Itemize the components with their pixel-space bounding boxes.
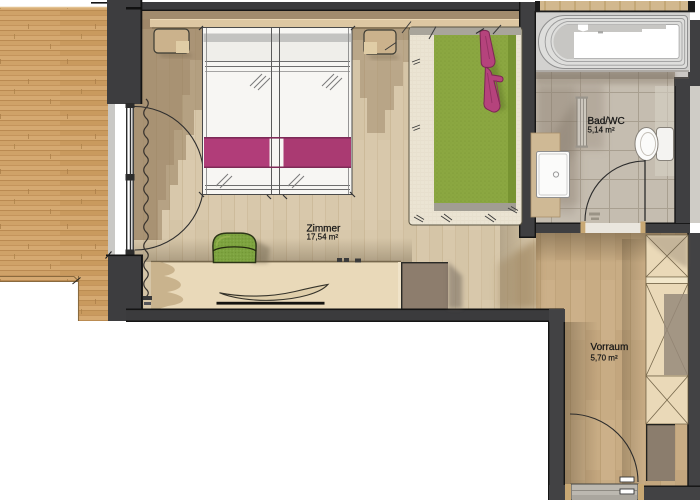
svg-text:17,54 m²: 17,54 m²: [307, 233, 339, 242]
svg-text:5,14 m²: 5,14 m²: [588, 126, 615, 135]
svg-text:Vorraum: Vorraum: [591, 342, 629, 353]
svg-text:5,70 m²: 5,70 m²: [591, 353, 618, 362]
